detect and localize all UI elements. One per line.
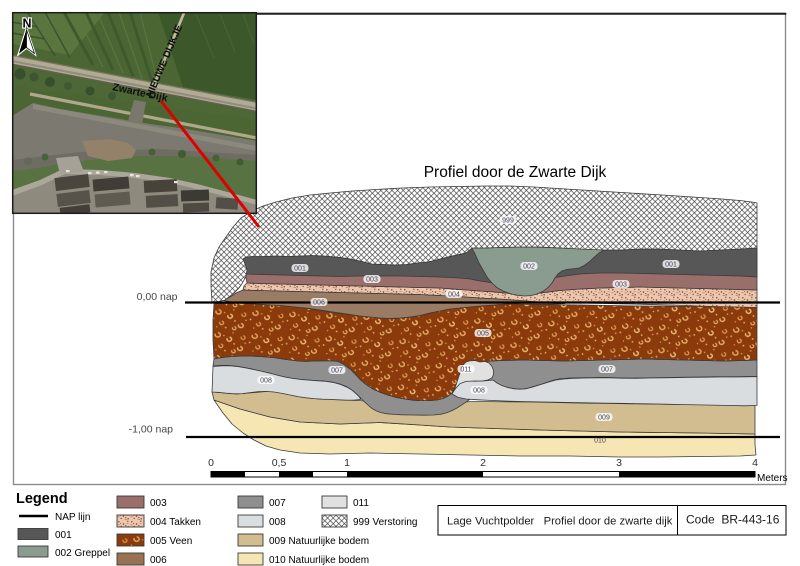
svg-text:Code BR-443-16: Code BR-443-16 xyxy=(686,513,780,527)
svg-text:006: 006 xyxy=(150,555,167,566)
svg-text:Meters: Meters xyxy=(757,473,788,484)
svg-text:011: 011 xyxy=(460,367,471,374)
svg-text:3: 3 xyxy=(616,457,622,469)
svg-text:011: 011 xyxy=(353,498,369,509)
svg-text:0,5: 0,5 xyxy=(272,457,287,469)
svg-text:004 Takken: 004 Takken xyxy=(150,517,201,528)
svg-text:004: 004 xyxy=(448,292,460,299)
svg-text:008: 008 xyxy=(260,378,272,385)
svg-text:008: 008 xyxy=(269,517,286,528)
svg-text:2: 2 xyxy=(480,457,486,469)
svg-text:008: 008 xyxy=(473,388,485,395)
svg-text:NAP lijn: NAP lijn xyxy=(55,512,90,523)
svg-text:1: 1 xyxy=(344,457,350,469)
svg-text:001: 001 xyxy=(55,530,72,541)
svg-text:-1,00 nap: -1,00 nap xyxy=(129,424,174,436)
svg-text:010: 010 xyxy=(594,438,606,445)
svg-text:005: 005 xyxy=(477,331,489,338)
svg-text:003: 003 xyxy=(615,282,627,289)
svg-text:Profiel door de Zwarte Dijk: Profiel door de Zwarte Dijk xyxy=(424,164,607,181)
svg-text:009 Natuurlijke bodem: 009 Natuurlijke bodem xyxy=(269,536,369,547)
svg-text:009: 009 xyxy=(598,415,610,422)
svg-text:007: 007 xyxy=(601,367,613,374)
svg-text:005 Veen: 005 Veen xyxy=(150,536,192,547)
svg-text:0,00 nap: 0,00 nap xyxy=(137,291,178,303)
svg-text:006: 006 xyxy=(313,300,325,307)
svg-text:999 Verstoring: 999 Verstoring xyxy=(353,517,418,528)
svg-text:002 Greppel: 002 Greppel xyxy=(55,548,110,559)
svg-text:N: N xyxy=(22,17,31,31)
svg-text:001: 001 xyxy=(665,262,677,269)
svg-text:Lage Vuchtpolder Profiel doo: Lage Vuchtpolder Profiel door de zwarte … xyxy=(447,516,673,528)
svg-text:007: 007 xyxy=(331,368,343,375)
svg-text:002: 002 xyxy=(523,264,535,271)
svg-text:4: 4 xyxy=(752,457,758,469)
svg-text:999: 999 xyxy=(502,218,514,225)
svg-text:010 Natuurlijke bodem: 010 Natuurlijke bodem xyxy=(269,555,369,566)
svg-text:003: 003 xyxy=(150,498,167,509)
svg-text:Legend: Legend xyxy=(16,491,68,507)
svg-text:0: 0 xyxy=(208,457,214,469)
svg-text:007: 007 xyxy=(269,498,286,509)
svg-text:001: 001 xyxy=(294,266,306,273)
svg-text:003: 003 xyxy=(366,277,378,284)
